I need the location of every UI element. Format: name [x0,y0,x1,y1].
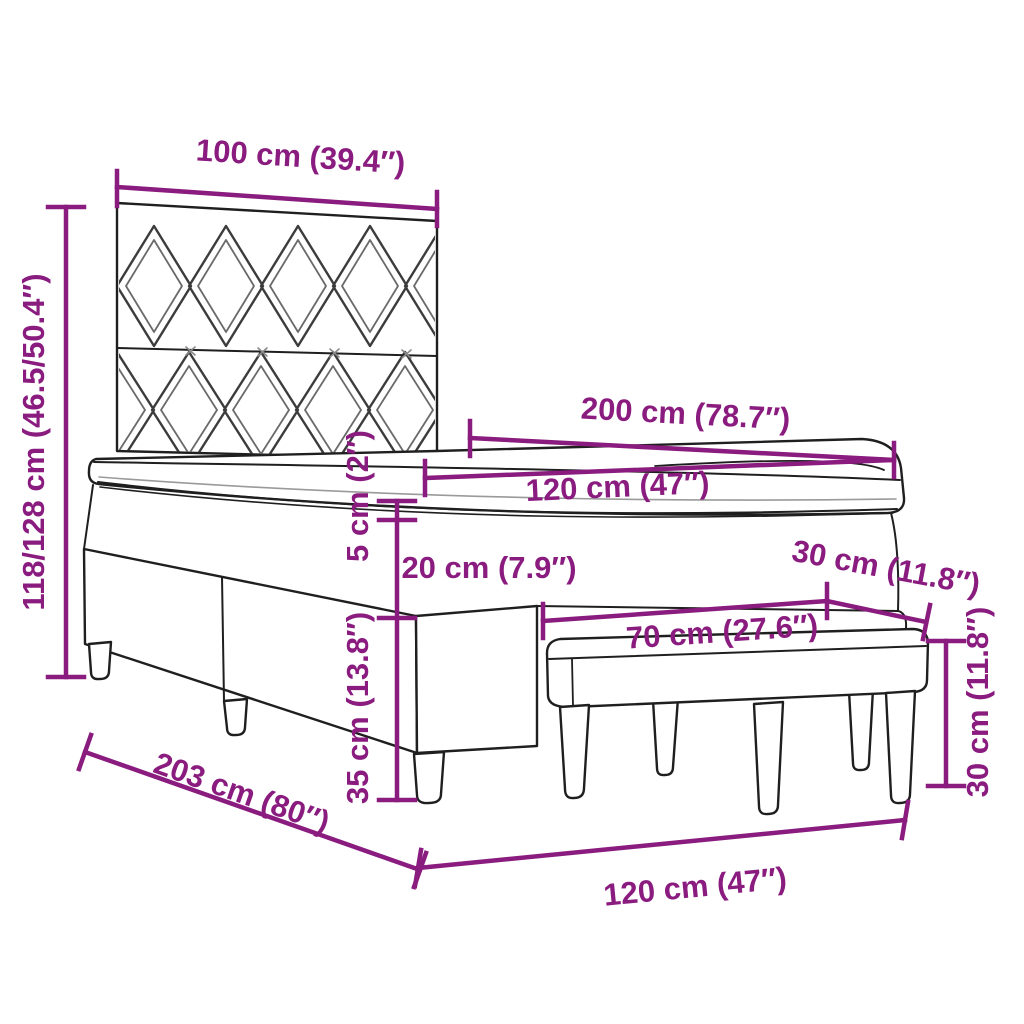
base-foot-face [416,606,537,753]
diagram-canvas: 100 cm (39.4″) 118/128 cm (46.5/50.4″) 2… [0,0,1024,1024]
bench-leg-front-left [560,705,589,798]
bed-drawing [80,203,928,814]
bed-leg-2 [224,699,247,735]
label-headboard-width: 100 cm (39.4″) [195,132,406,180]
bench-seat-left-edge [572,659,573,706]
bed-dimension-diagram: 100 cm (39.4″) 118/128 cm (46.5/50.4″) 2… [0,0,1024,1024]
label-base-height: 35 cm (13.8″) [340,612,375,804]
label-total-height: 118/128 cm (46.5/50.4″) [16,273,51,610]
bench-leg-front-mid [754,702,783,814]
bench-leg-front-right [886,691,915,803]
label-mattress-thickness: 20 cm (7.9″) [401,550,576,585]
headboard-panel [117,203,437,459]
label-frame-width: 120 cm (47″) [602,860,788,912]
bench-leg-back-left [653,698,678,775]
label-bench-height: 30 cm (11.8″) [960,607,995,798]
headboard [80,203,479,468]
label-bed-length: 200 cm (78.7″) [580,391,791,437]
bench-leg-back-right [849,689,873,770]
dim-line-total-height [48,207,84,677]
bed-leg-1 [89,642,111,679]
dim-line-bench-height [928,641,964,786]
label-topper-thickness: 5 cm (2″) [340,430,375,562]
label-bench-depth: 30 cm (11.8″) [789,533,983,602]
label-frame-length: 203 cm (80″) [149,745,334,839]
bench [547,629,928,814]
mattress-left-edge [84,485,93,549]
bed-leg-3 [414,752,444,803]
